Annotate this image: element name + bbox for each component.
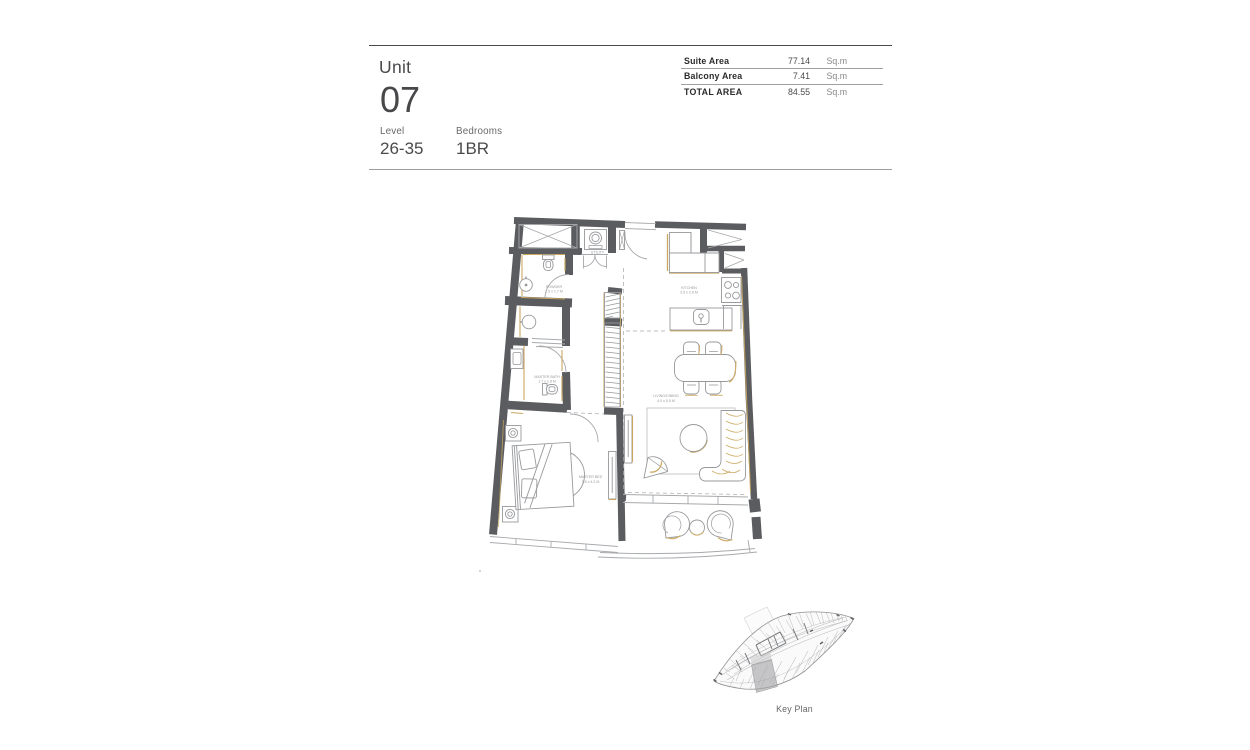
svg-text:3.5 x 4.2 M: 3.5 x 4.2 M [582, 480, 600, 484]
svg-text:KITCHEN: KITCHEN [681, 286, 697, 290]
svg-text:1.5 x 1.7 M: 1.5 x 1.7 M [545, 290, 563, 294]
svg-text:4.0 x 5.5 M: 4.0 x 5.5 M [657, 399, 675, 403]
svg-text:MASTER BATH: MASTER BATH [534, 375, 560, 379]
svg-text:3.5 x 2.8 M: 3.5 x 2.8 M [680, 291, 698, 295]
svg-text:MASTER BED: MASTER BED [579, 475, 603, 479]
svg-text:1.7 x 1.8 M: 1.7 x 1.8 M [538, 380, 556, 384]
svg-text:POWDER: POWDER [546, 285, 563, 289]
svg-text:UTILITY: UTILITY [591, 250, 605, 254]
svg-text:LIVING/DINING: LIVING/DINING [653, 394, 679, 398]
